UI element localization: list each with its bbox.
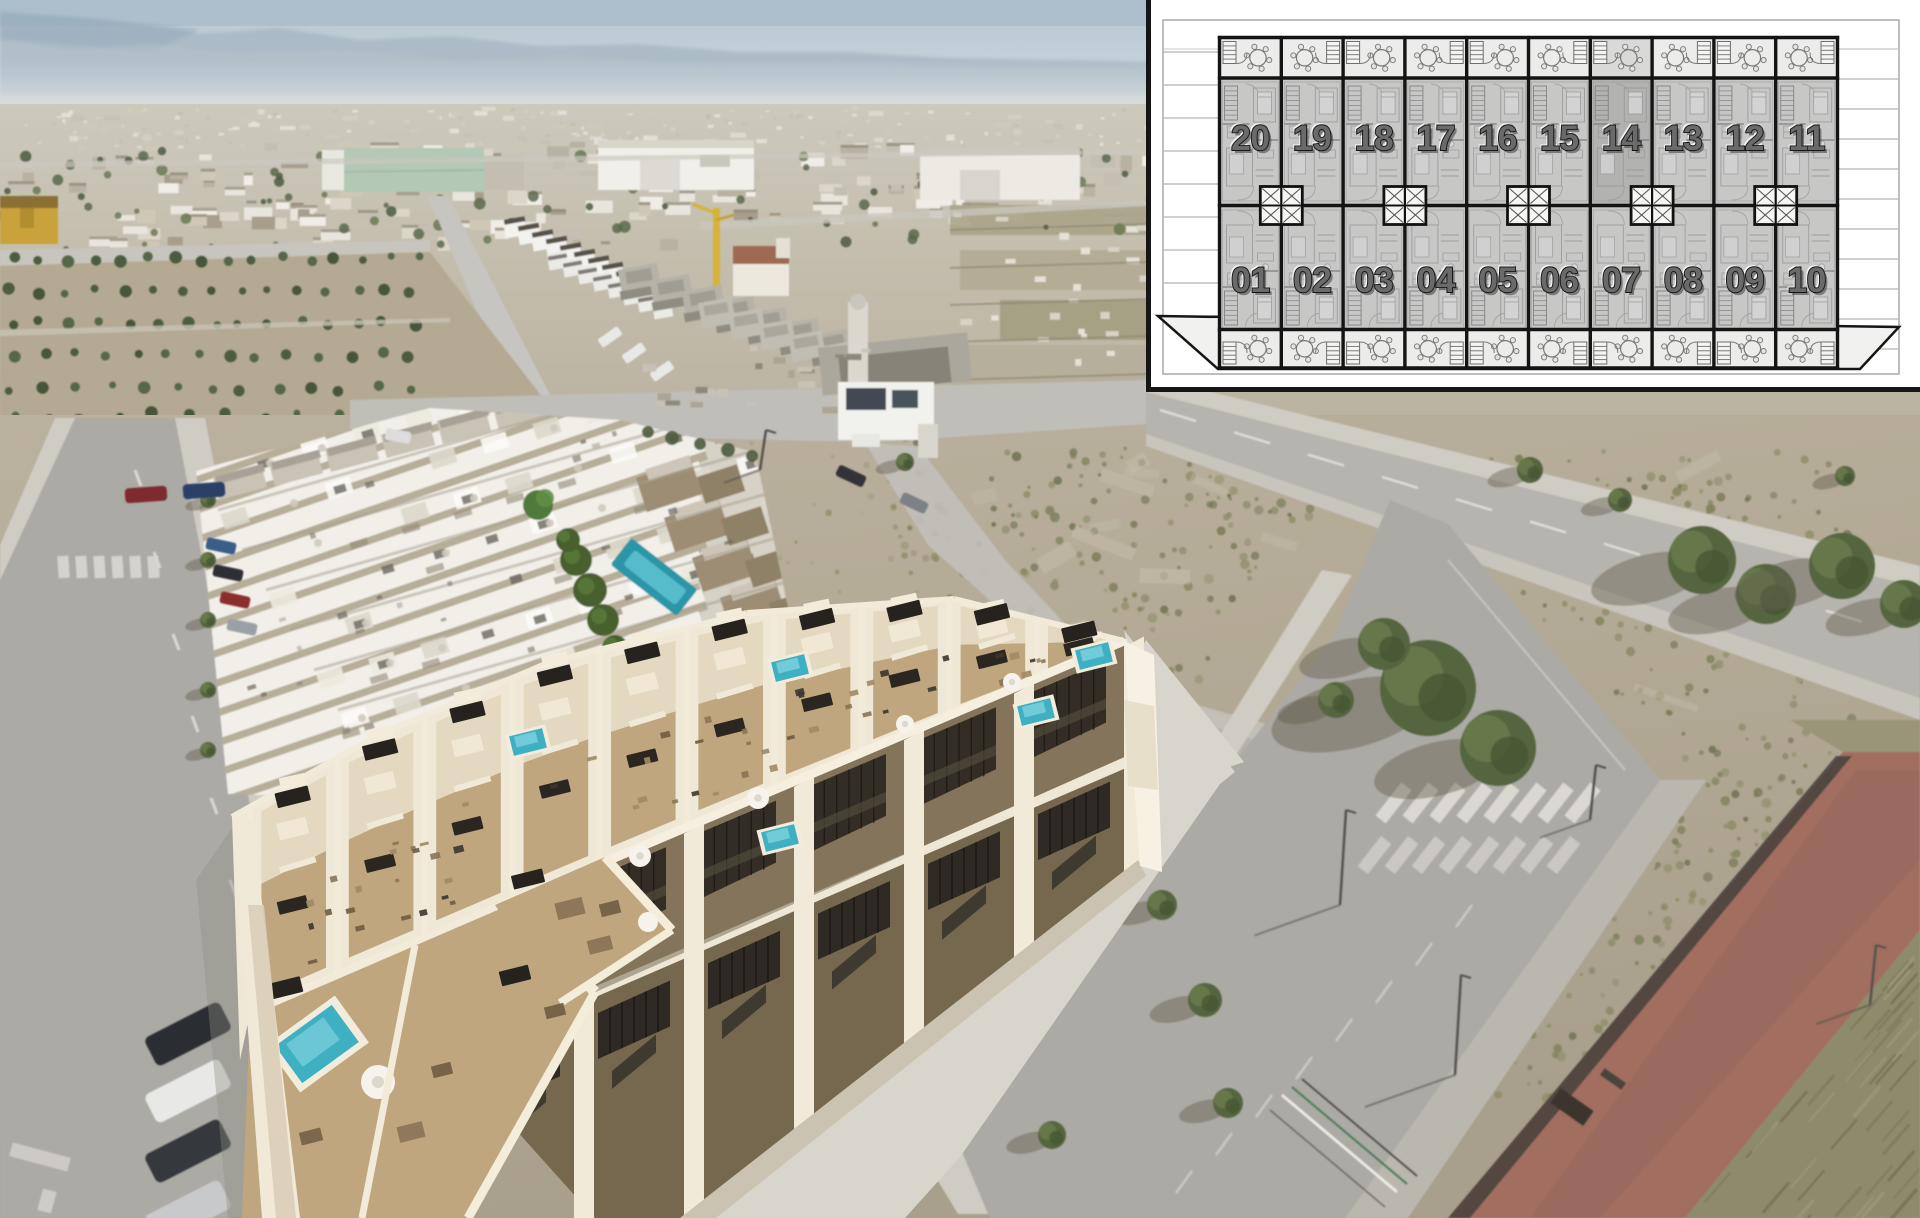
svg-text:01: 01 (1231, 260, 1270, 300)
svg-text:04: 04 (1417, 260, 1456, 300)
svg-text:09: 09 (1726, 260, 1765, 300)
svg-text:02: 02 (1293, 260, 1332, 300)
svg-text:19: 19 (1293, 118, 1332, 158)
svg-text:12: 12 (1726, 118, 1765, 158)
svg-text:03: 03 (1355, 260, 1394, 300)
svg-text:18: 18 (1355, 118, 1394, 158)
svg-text:17: 17 (1417, 118, 1456, 158)
svg-text:16: 16 (1478, 118, 1517, 158)
svg-text:07: 07 (1602, 260, 1641, 300)
svg-text:06: 06 (1540, 260, 1579, 300)
svg-text:05: 05 (1478, 260, 1517, 300)
svg-text:20: 20 (1231, 118, 1270, 158)
svg-text:08: 08 (1664, 260, 1703, 300)
svg-text:14: 14 (1602, 118, 1641, 158)
svg-text:13: 13 (1664, 118, 1703, 158)
svg-text:11: 11 (1788, 118, 1825, 158)
svg-text:10: 10 (1787, 260, 1826, 300)
svg-text:15: 15 (1540, 118, 1579, 158)
